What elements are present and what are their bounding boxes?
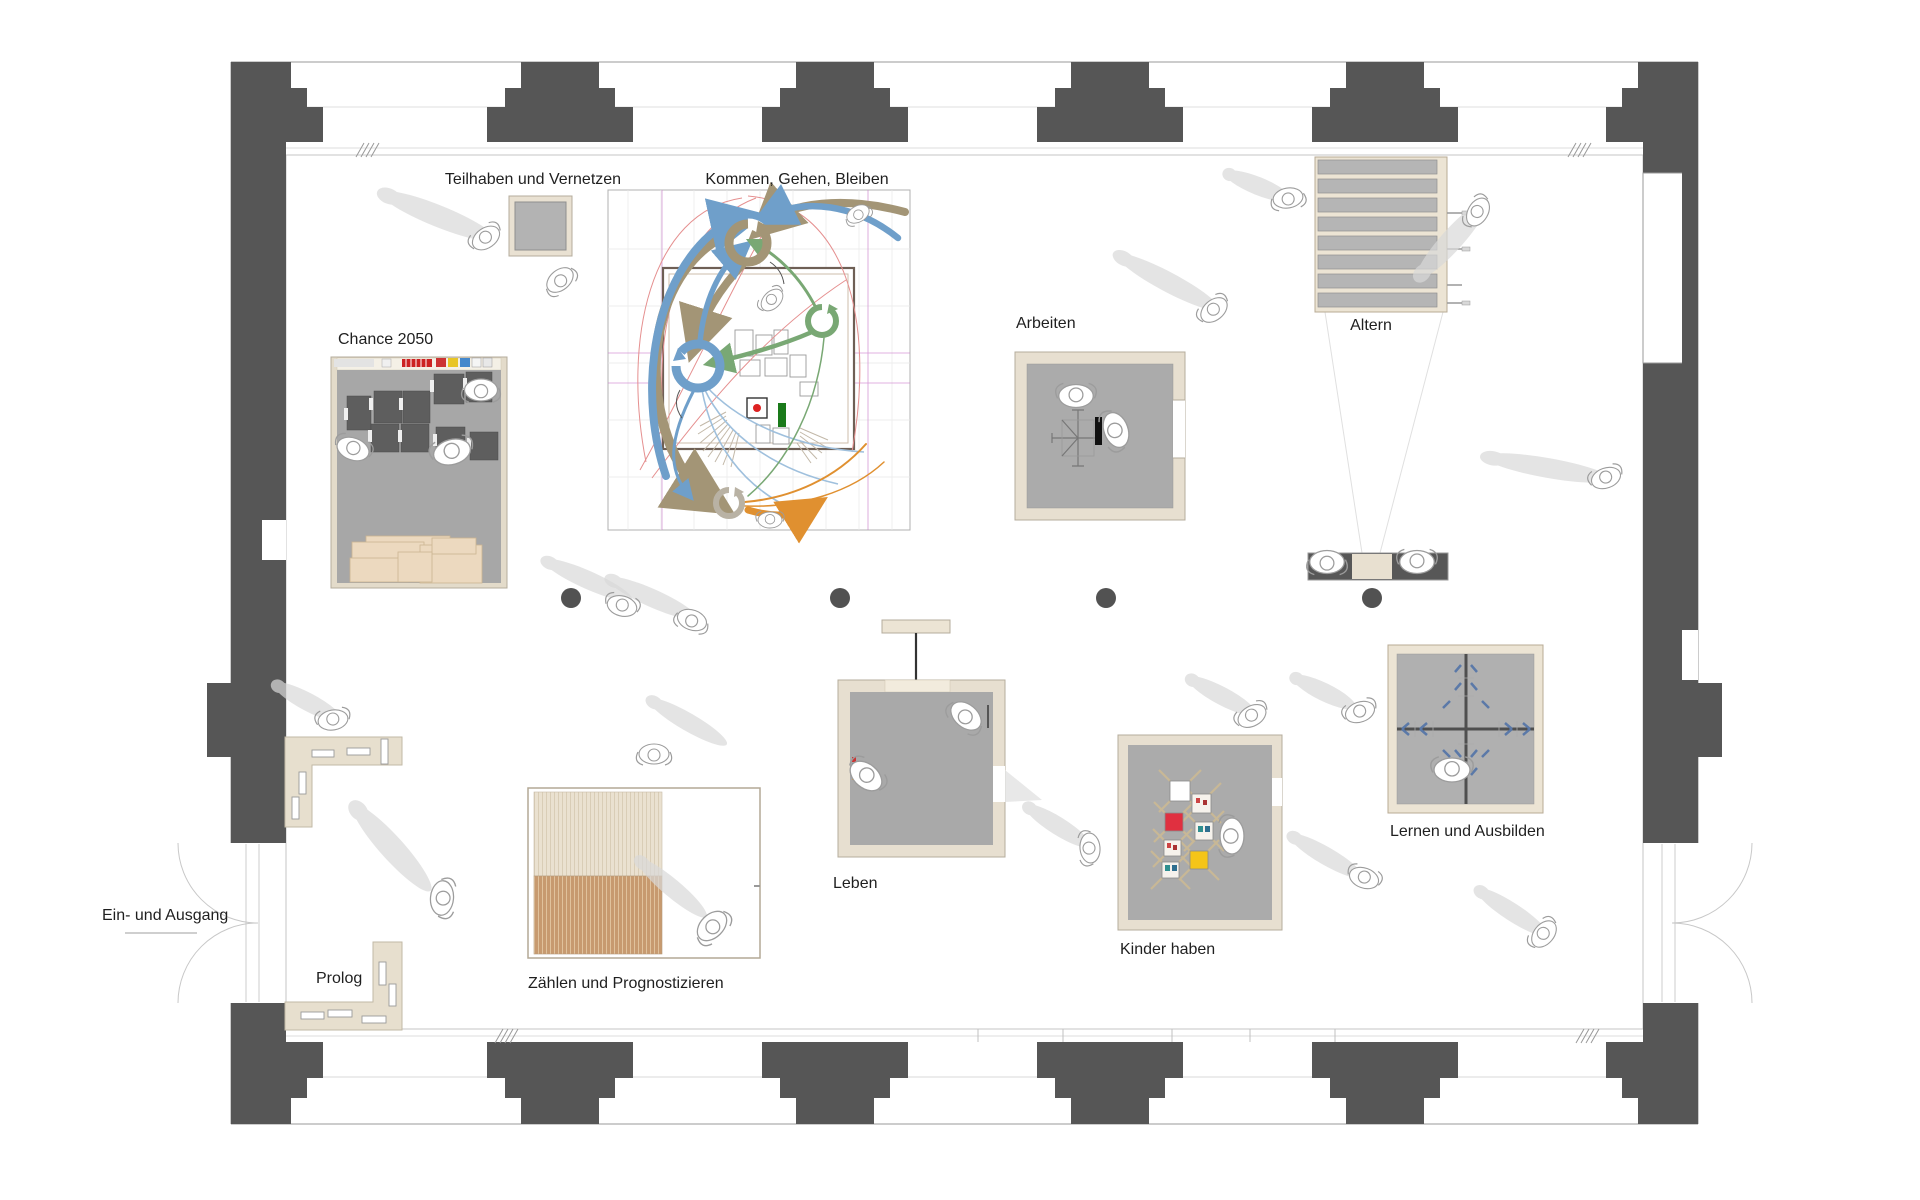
kinder-door <box>1272 778 1282 806</box>
station-chance <box>331 357 507 588</box>
station-teilhaben <box>509 196 572 256</box>
room-columns <box>561 588 1382 608</box>
station-zaehlen <box>528 788 760 958</box>
person-figure <box>1344 862 1384 894</box>
station-kommen-diagram <box>608 190 910 530</box>
zaehlen-curtain-dark <box>534 876 662 954</box>
label-entrance: Ein- und Ausgang <box>102 907 228 924</box>
station-lernen <box>1388 645 1543 813</box>
wall-pillar <box>1312 62 1458 142</box>
station-arbeiten <box>1015 352 1185 520</box>
floor-plan-svg: Teilhaben und Vernetzen Kommen, Gehen, B… <box>0 0 1920 1200</box>
label-kinder: Kinder haben <box>1120 941 1215 958</box>
leben-sign <box>882 620 950 633</box>
model-green-bar <box>778 403 786 427</box>
exhibition-floor-plan-page: Teilhaben und Vernetzen Kommen, Gehen, B… <box>0 0 1920 1200</box>
column-dot <box>830 588 850 608</box>
label-altern: Altern <box>1350 317 1392 334</box>
leben-door <box>993 766 1005 802</box>
chance-seating <box>350 536 482 583</box>
person-shadow <box>642 690 732 752</box>
person-shadow <box>342 794 439 899</box>
wall-pillar <box>1037 1042 1183 1124</box>
label-chance: Chance 2050 <box>338 331 433 348</box>
column-dot <box>1096 588 1116 608</box>
wall-pillar <box>762 62 908 142</box>
label-kommen: Kommen, Gehen, Bleiben <box>705 171 888 188</box>
wall-pillar <box>487 62 633 142</box>
label-lernen: Lernen und Ausbilden <box>1390 823 1545 840</box>
wall-pillar <box>1037 62 1183 142</box>
exit-doors <box>1662 843 1752 1003</box>
chance-toolbar-icons <box>334 358 492 367</box>
station-leben <box>838 620 1042 857</box>
column-dot <box>1362 588 1382 608</box>
person-figure <box>429 877 457 920</box>
label-leben: Leben <box>833 875 878 892</box>
person-figure <box>1586 462 1626 494</box>
label-arbeiten: Arbeiten <box>1016 315 1076 332</box>
person-figure <box>540 261 581 300</box>
label-zaehlen: Zählen und Prognostizieren <box>528 975 724 992</box>
column-dot <box>561 588 581 608</box>
label-teilhaben: Teilhaben und Vernetzen <box>445 171 621 188</box>
arbeiten-door <box>1173 400 1185 458</box>
wall-pillar <box>762 1042 908 1124</box>
wall-pillar <box>1312 1042 1458 1124</box>
wall-pillar <box>487 1042 633 1124</box>
station-altern <box>1307 157 1470 580</box>
altern-bench <box>1307 549 1448 580</box>
person-figure <box>636 744 671 765</box>
label-prolog: Prolog <box>316 970 362 987</box>
station-kinder <box>1118 735 1282 930</box>
